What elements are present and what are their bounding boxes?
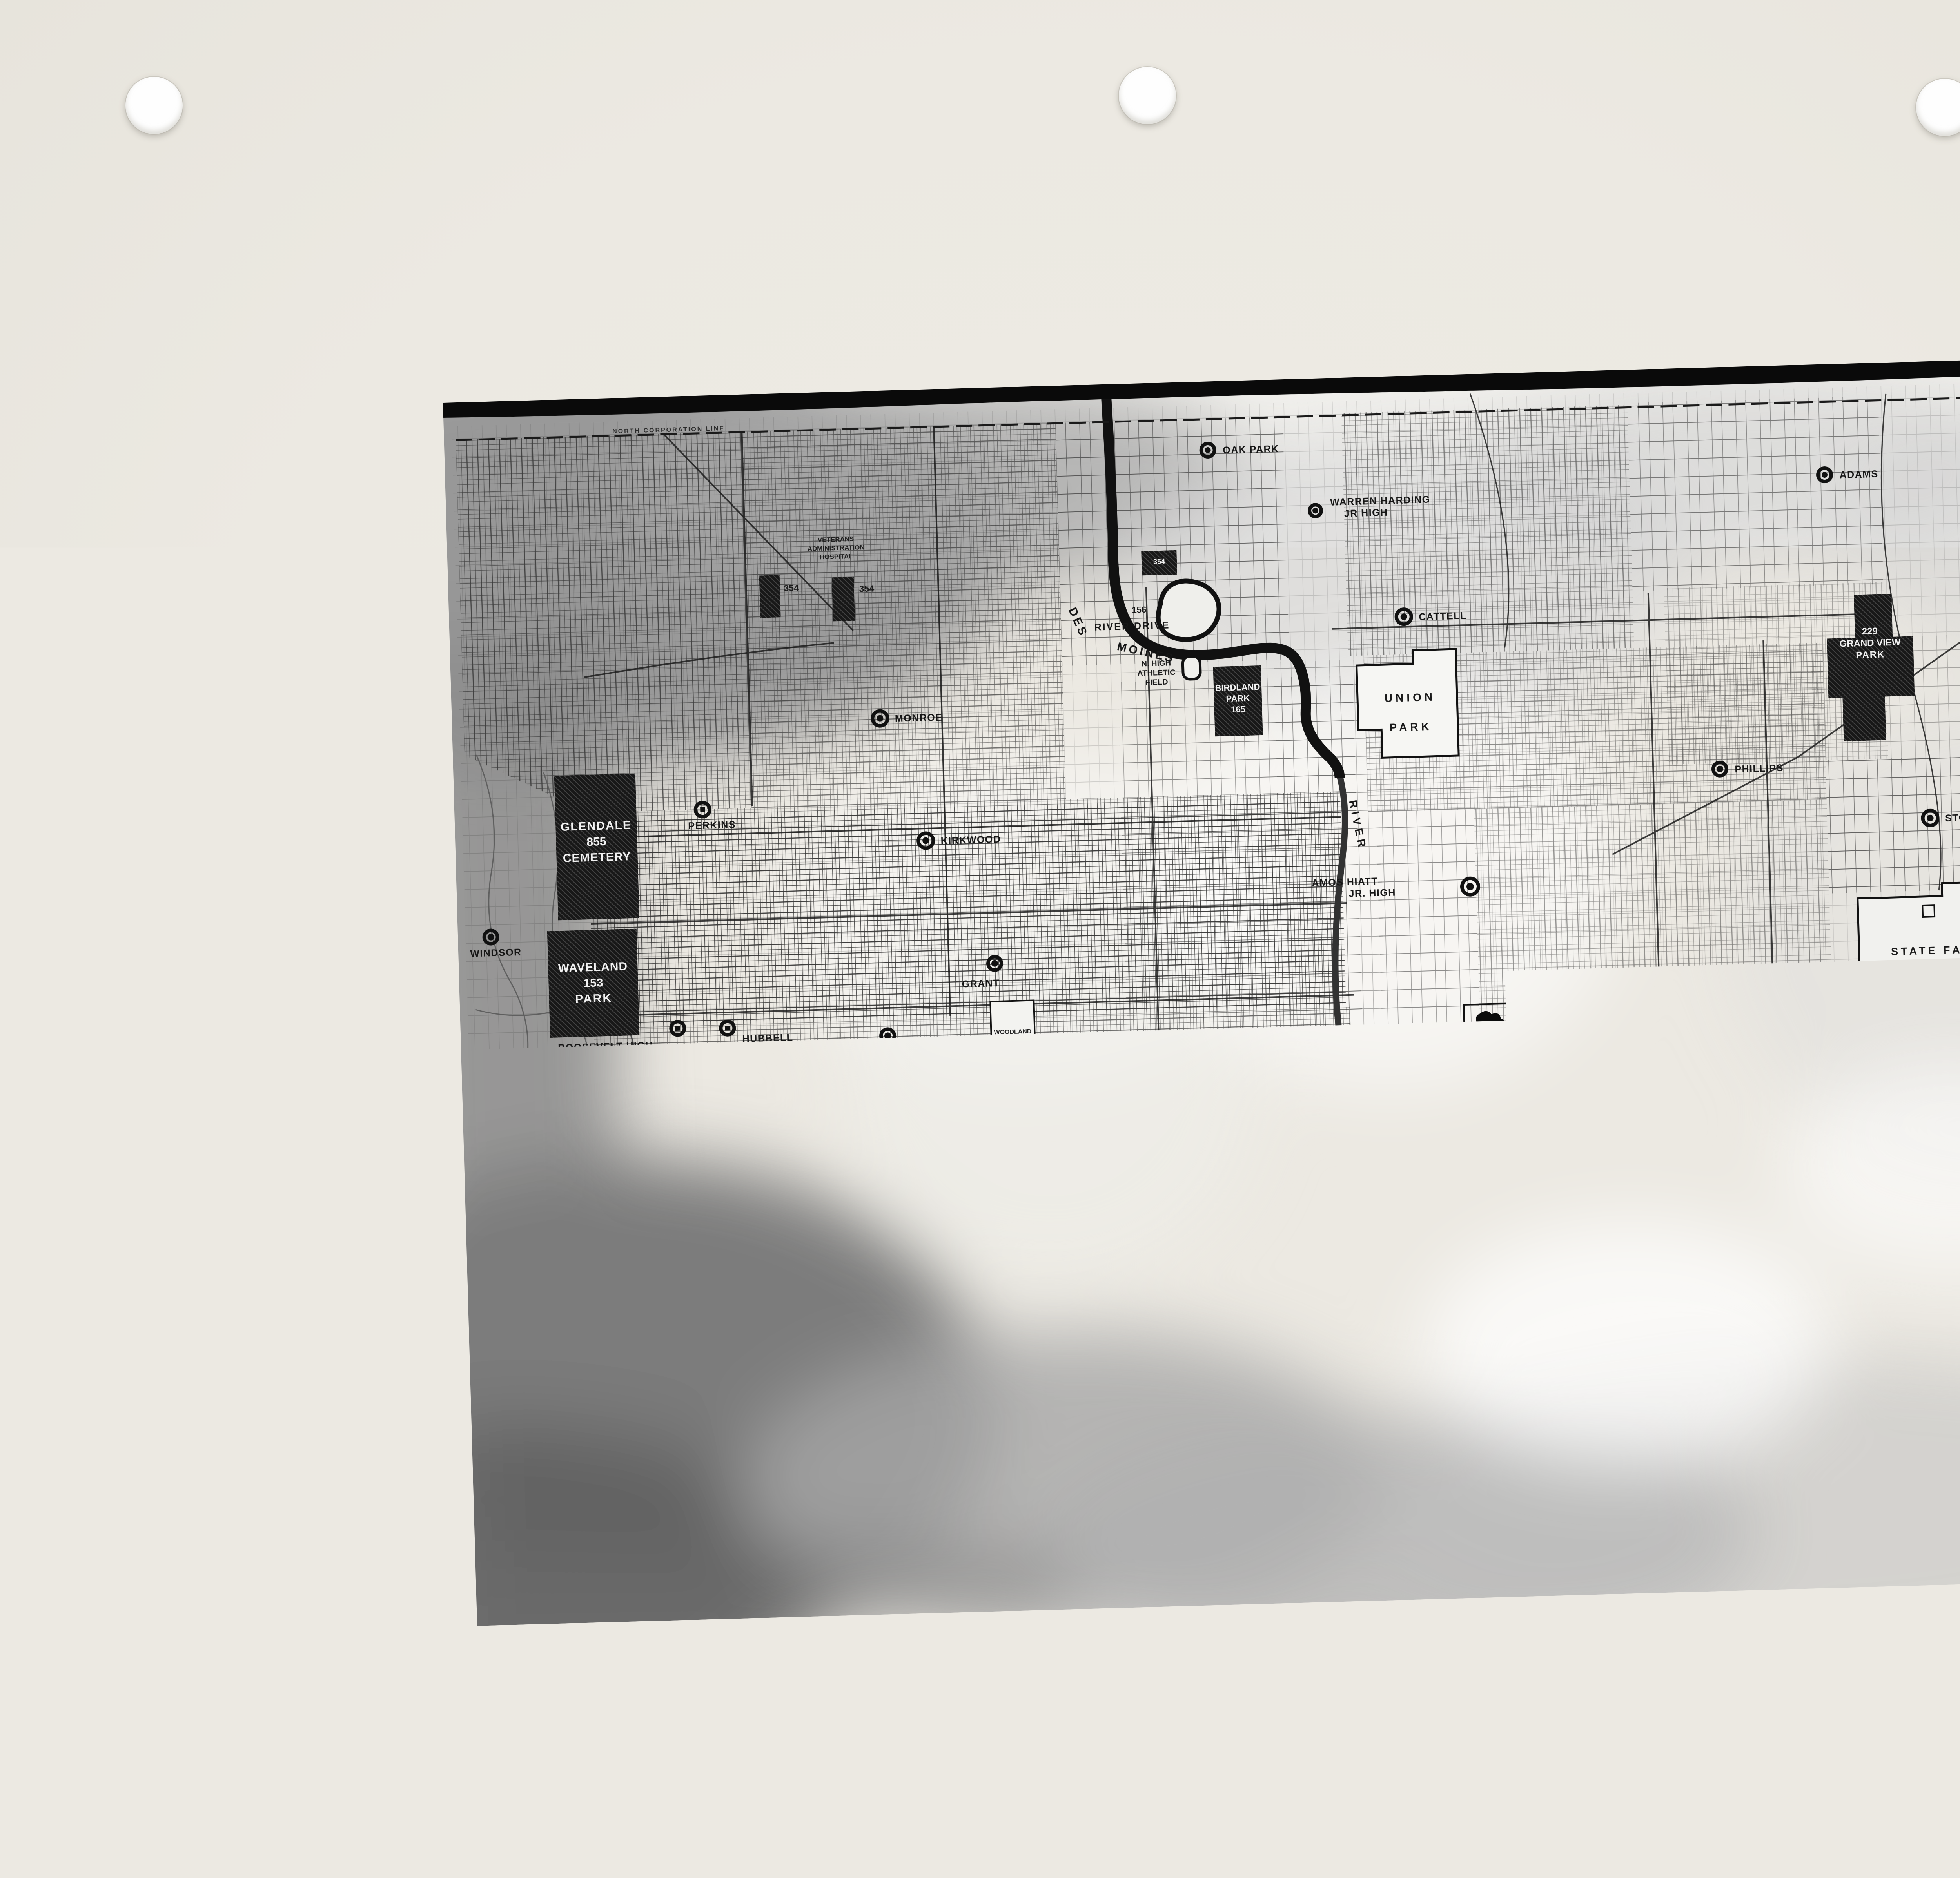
svg-text:ASH-: ASH-: [661, 1247, 684, 1258]
svg-text:ATHLETIC: ATHLETIC: [1137, 668, 1176, 678]
svg-text:PERKINS: PERKINS: [688, 819, 736, 832]
svg-text:MONROE: MONROE: [895, 712, 943, 724]
svg-text:WEST JR.: WEST JR.: [1112, 1037, 1163, 1049]
svg-text:PARK: PARK: [1856, 649, 1885, 660]
svg-text:PARK: PARK: [659, 1291, 688, 1303]
svg-text:RIVER DRIVE: RIVER DRIVE: [1094, 620, 1170, 633]
svg-text:CEMETERY: CEMETERY: [996, 1037, 1031, 1044]
svg-text:CEMETERY: CEMETERY: [563, 850, 631, 865]
svg-text:OAK PARK: OAK PARK: [1223, 443, 1279, 456]
svg-text:CATTELL: CATTELL: [1419, 610, 1467, 622]
svg-text:HANAWALT: HANAWALT: [566, 1207, 626, 1219]
svg-text:HIGH: HIGH: [1120, 1049, 1147, 1060]
svg-text:PARK: PARK: [657, 1213, 686, 1224]
svg-text:PARK: PARK: [1226, 693, 1250, 704]
svg-text:WAVELAND: WAVELAND: [558, 960, 628, 975]
svg-text:AMOS HIATT: AMOS HIATT: [1312, 876, 1378, 889]
svg-text:GRAND VIEW: GRAND VIEW: [1839, 637, 1901, 649]
svg-text:JR HIGH: JR HIGH: [1344, 507, 1388, 519]
svg-text:WINDSOR: WINDSOR: [470, 947, 522, 959]
svg-text:UNION: UNION: [1384, 691, 1436, 705]
svg-text:229: 229: [1862, 626, 1878, 637]
svg-text:PHILLIPS: PHILLIPS: [1735, 763, 1784, 775]
svg-text:PARK: PARK: [575, 992, 613, 1006]
svg-text:354: 354: [784, 583, 799, 593]
svg-text:MAPLE GROVE: MAPLE GROVE: [1264, 1502, 1343, 1515]
svg-text:McKINLEY: McKINLEY: [1340, 1248, 1394, 1260]
svg-text:HOSPITAL: HOSPITAL: [820, 553, 853, 561]
svg-text:GREENWOOD: GREENWOOD: [823, 1158, 895, 1171]
svg-text:354: 354: [859, 583, 874, 594]
svg-text:CALLANAN: CALLANAN: [858, 1048, 918, 1060]
svg-text:156: 156: [1132, 605, 1146, 615]
svg-text:354: 354: [1153, 558, 1165, 566]
svg-text:PARK: PARK: [1559, 1334, 1579, 1342]
svg-text:354: 354: [1137, 1319, 1151, 1328]
svg-text:PIONEER: PIONEER: [1552, 1324, 1584, 1332]
svg-text:GRANT: GRANT: [962, 978, 1000, 990]
svg-text:153: 153: [583, 976, 603, 990]
svg-text:MAC RAE: MAC RAE: [1125, 1309, 1162, 1318]
svg-text:HIGH: HIGH: [1256, 1432, 1283, 1444]
svg-text:· LEGEND ·: · LEGEND ·: [1931, 1470, 1960, 1484]
svg-text:GREEN-: GREEN-: [651, 1156, 688, 1168]
svg-text:PARK: PARK: [1389, 720, 1432, 734]
svg-text:855: 855: [586, 835, 606, 848]
svg-text:VETERANS: VETERANS: [818, 535, 854, 544]
svg-text:KIRKWOOD: KIRKWOOD: [940, 834, 1001, 847]
svg-text:FIELD: FIELD: [1145, 678, 1168, 687]
svg-text:WOODLAND: WOODLAND: [994, 1028, 1031, 1036]
svg-text:WILLARD: WILLARD: [1785, 1000, 1834, 1013]
svg-text:JR. HIGH: JR. HIGH: [1348, 887, 1396, 899]
svg-text:PARK: PARK: [1133, 1336, 1155, 1345]
svg-text:165: 165: [1231, 704, 1245, 714]
svg-text:BIRDLAND: BIRDLAND: [1215, 682, 1260, 693]
svg-text:889: 889: [1561, 1313, 1575, 1322]
svg-text:WORTH: WORTH: [655, 1258, 690, 1270]
svg-text:STOWE: STOWE: [1945, 812, 1960, 824]
svg-text:DONALD: DONALD: [1126, 1298, 1160, 1308]
svg-text:WOOD: WOOD: [655, 1168, 685, 1180]
svg-text:ADAMS: ADAMS: [1839, 469, 1878, 481]
svg-text:LINCOLN: LINCOLN: [1250, 1420, 1298, 1432]
svg-text:JR. HIGH: JR. HIGH: [865, 1059, 912, 1071]
svg-text:HUBBELL: HUBBELL: [742, 1032, 793, 1045]
svg-text:GLENDALE: GLENDALE: [560, 819, 632, 834]
svg-text:243: 243: [662, 1180, 679, 1191]
